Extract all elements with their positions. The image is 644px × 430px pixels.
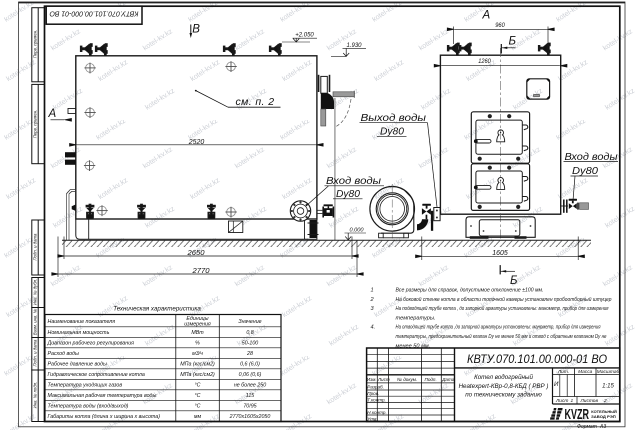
svg-text:2770: 2770 — [191, 266, 210, 275]
svg-text:°С: °С — [195, 404, 201, 410]
svg-text:м3/ч: м3/ч — [192, 351, 203, 357]
svg-text:Температура уходящих газов: Температура уходящих газов — [48, 383, 123, 389]
svg-text:Температура воды (вход/выход): Температура воды (вход/выход) — [48, 404, 129, 410]
svg-text:Перв. примен.: Перв. примен. — [33, 110, 38, 139]
svg-text:Лист: Лист — [377, 377, 390, 382]
svg-text:Инв. № дубл.: Инв. № дубл. — [33, 279, 38, 305]
svg-text:Габариты котла (длина х ширина: Габариты котла (длина х ширина х высота) — [48, 414, 161, 420]
svg-text:0,06 (0,6): 0,06 (0,6) — [239, 372, 262, 378]
svg-text:+2.050: +2.050 — [295, 33, 314, 39]
svg-text:измерения: измерения — [184, 321, 211, 327]
svg-text:Выход воды: Выход воды — [361, 113, 427, 124]
svg-text:Изм.: Изм. — [367, 377, 377, 382]
svg-text:температуры.: температуры. — [396, 315, 436, 321]
svg-text:Dy80: Dy80 — [336, 189, 361, 200]
svg-text:°С: °С — [195, 393, 201, 399]
svg-text:Формат: Формат — [577, 424, 597, 430]
svg-text:Масса: Масса — [578, 369, 593, 375]
svg-text:70/95: 70/95 — [243, 404, 256, 410]
svg-text:не более 250: не более 250 — [234, 383, 266, 389]
svg-text:см. п. 2: см. п. 2 — [236, 96, 275, 108]
svg-text:1260: 1260 — [478, 58, 491, 65]
svg-text:по техническому заданию: по техническому заданию — [465, 391, 542, 398]
svg-text:В: В — [192, 24, 200, 36]
svg-text:Т.контр.: Т.контр. — [367, 398, 386, 403]
svg-text:°С: °С — [195, 383, 201, 389]
svg-text:Dy80: Dy80 — [572, 166, 599, 177]
svg-text:Dy80: Dy80 — [380, 126, 405, 137]
svg-text:2: 2 — [603, 398, 607, 404]
svg-text:1.930: 1.930 — [346, 43, 362, 49]
svg-text:2520: 2520 — [188, 137, 205, 146]
svg-text:Взам. инв. №: Взам. инв. № — [33, 308, 38, 335]
svg-text:МПа (кгс/см2): МПа (кгс/см2) — [180, 372, 215, 378]
svg-text:На отводящей трубе котла ,до з: На отводящей трубе котла ,до запорной ар… — [396, 324, 601, 331]
svg-text:2650: 2650 — [186, 248, 205, 257]
svg-text:температуры, предохранительный: температуры, предохранительный клапан Dу… — [396, 333, 607, 340]
svg-text:2770х1605х2050: 2770х1605х2050 — [229, 414, 271, 420]
svg-text:28: 28 — [246, 351, 253, 357]
svg-text:Расход воды: Расход воды — [48, 351, 79, 357]
svg-text:Подп. и дата: Подп. и дата — [33, 339, 38, 367]
svg-text:Подп. и дата: Подп. и дата — [33, 233, 38, 261]
svg-text:Рабочее давление воды: Рабочее давление воды — [48, 362, 107, 368]
svg-text:Все размеры для справок, допус: Все размеры для справок, допустимое откл… — [396, 288, 544, 294]
svg-text:№ докум.: № докум. — [397, 377, 417, 382]
svg-text:KVZR: KVZR — [565, 406, 590, 423]
svg-text:0,6 (6,0): 0,6 (6,0) — [240, 362, 260, 368]
svg-text:КВТУ.070.101.00.000-01 ВО: КВТУ.070.101.00.000-01 ВО — [49, 9, 138, 18]
svg-text:Масштаб: Масштаб — [597, 369, 620, 375]
svg-text:%: % — [195, 341, 200, 347]
svg-text:Гидравлическое сопротивление к: Гидравлическое сопротивление котла — [48, 372, 145, 378]
svg-text:ЗАВОД РЭП: ЗАВОД РЭП — [591, 414, 616, 419]
svg-text:Б: Б — [509, 36, 517, 48]
svg-text:Подп.: Подп. — [425, 377, 437, 382]
svg-text:МПа (кгс/см2): МПа (кгс/см2) — [180, 362, 215, 368]
svg-text:Максимальная рабочая температу: Максимальная рабочая температура воды — [48, 393, 157, 399]
svg-text:На боковой стенке котла в обла: На боковой стенке котла в области топочн… — [396, 296, 612, 303]
svg-text:КВТУ.070.101.00.000-01 ВО: КВТУ.070.101.00.000-01 ВО — [467, 352, 607, 366]
svg-text:Дата: Дата — [441, 377, 455, 382]
svg-text:Значение: Значение — [238, 319, 261, 325]
svg-text:Heatexpert-КВр-0,8-КБД ( РВР ): Heatexpert-КВр-0,8-КБД ( РВР ) — [459, 383, 549, 390]
svg-text:И: И — [554, 381, 559, 388]
svg-text:4.: 4. — [371, 325, 376, 331]
svg-text:Инв. № подл.: Инв. № подл. — [33, 382, 38, 409]
svg-text:МВт: МВт — [191, 330, 204, 336]
svg-text:Пров.: Пров. — [367, 391, 379, 396]
svg-text:Диапазон рабочего регулировани: Диапазон рабочего регулирования — [47, 341, 135, 347]
svg-text:Лист: Лист — [555, 398, 568, 404]
svg-text:115: 115 — [246, 393, 254, 399]
svg-text:Перв. примен.: Перв. примен. — [33, 30, 38, 59]
svg-text:Наименование показателя: Наименование показателя — [48, 319, 116, 325]
svg-text:0,8: 0,8 — [246, 330, 253, 336]
svg-text:50-100: 50-100 — [242, 341, 259, 347]
svg-text:Разраб.: Разраб. — [367, 385, 384, 390]
svg-text:Вход воды: Вход воды — [326, 176, 382, 187]
svg-text:На подводящей трубе котла ,: На подводящей трубе котла , до запорной … — [396, 305, 609, 312]
svg-text:Котел водогрейный: Котел водогрейный — [474, 374, 533, 381]
svg-text:Н.контр.: Н.контр. — [367, 410, 386, 415]
svg-text:А: А — [48, 108, 57, 120]
svg-text:Б: Б — [510, 275, 518, 287]
svg-text:мм: мм — [194, 414, 202, 420]
svg-text:1: 1 — [571, 398, 574, 404]
svg-text:Утв.: Утв. — [367, 416, 377, 421]
svg-text:А: А — [482, 10, 491, 22]
svg-text:Номинальная мощность: Номинальная мощность — [48, 330, 110, 336]
svg-text:Листов: Листов — [580, 398, 599, 404]
svg-text:А3: А3 — [599, 424, 606, 430]
svg-text:Техническая характеристика: Техническая характеристика — [113, 305, 201, 312]
svg-text:Лит.: Лит. — [557, 369, 569, 375]
svg-text:1: 1 — [371, 288, 374, 294]
svg-text:960: 960 — [495, 22, 505, 29]
svg-text:1:15: 1:15 — [602, 384, 614, 390]
svg-text:1605: 1605 — [492, 248, 508, 257]
